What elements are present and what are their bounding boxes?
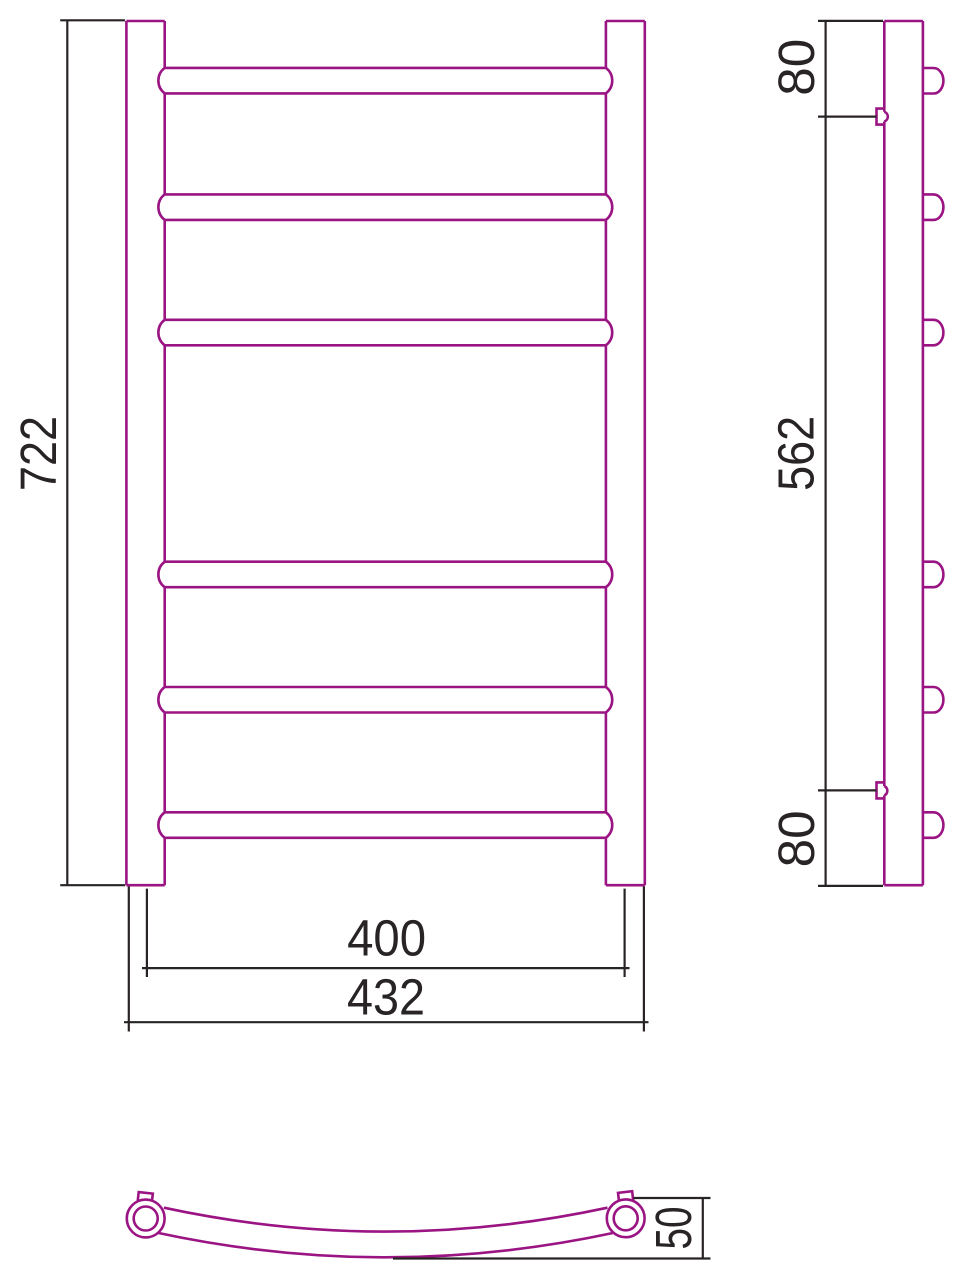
svg-text:80: 80 <box>768 39 825 96</box>
svg-text:432: 432 <box>347 969 425 1026</box>
svg-text:400: 400 <box>347 910 426 967</box>
svg-text:722: 722 <box>10 416 67 491</box>
svg-text:80: 80 <box>768 810 825 867</box>
svg-text:562: 562 <box>768 416 825 491</box>
svg-text:50: 50 <box>645 1207 702 1250</box>
